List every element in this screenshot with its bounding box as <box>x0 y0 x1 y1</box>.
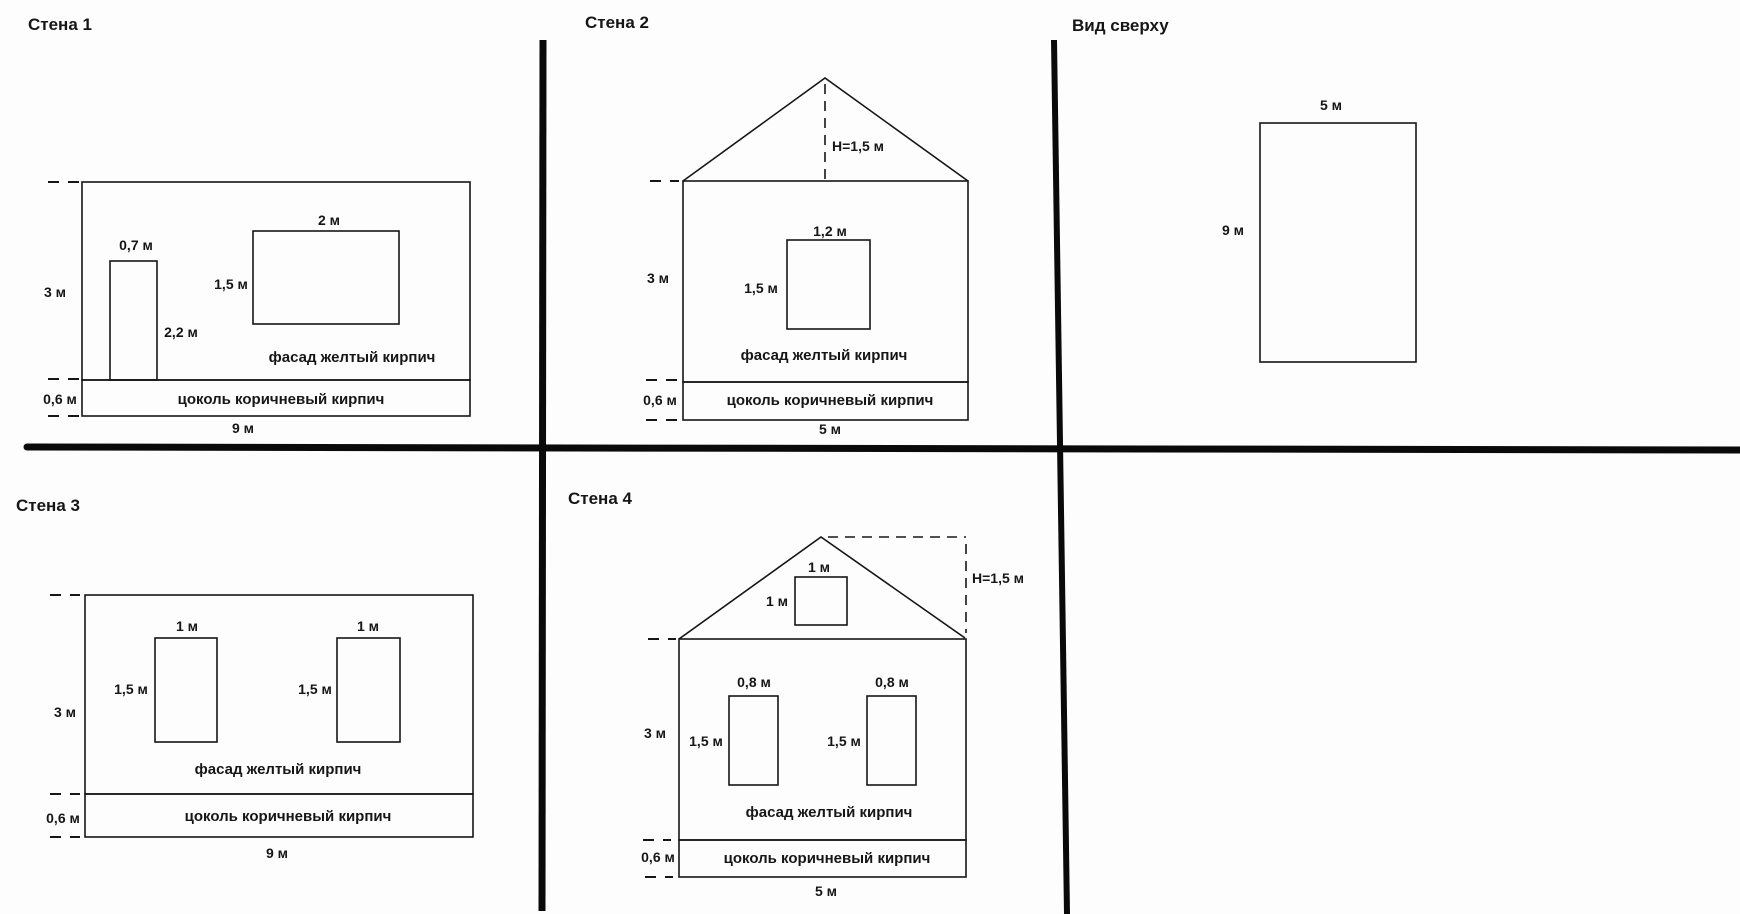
panel-wall3: Стена 3 1 м 1 м 1,5 м 1,5 м 3 м фасад же… <box>16 496 473 861</box>
wall1-door-width-label: 0,7 м <box>119 237 153 253</box>
wall4-window1-width-label: 0,8 м <box>737 674 771 690</box>
wall3-plinth-height-label: 0,6 м <box>46 810 80 826</box>
wall2-plinth-material-label: цоколь коричневый кирпич <box>727 392 934 409</box>
wall1-plinth-material-label: цоколь коричневый кирпич <box>178 391 385 408</box>
top-view-width-label: 5 м <box>1320 97 1342 113</box>
wall2-roof-height-label: H=1,5 м <box>832 138 884 154</box>
wall1-plinth-height-label: 0,6 м <box>43 391 77 407</box>
wall4-window-1 <box>729 696 778 785</box>
wall3-window1-height-label: 1,5 м <box>114 681 148 697</box>
wall3-title: Стена 3 <box>16 496 80 515</box>
wall2-facade-material-label: фасад желтый кирпич <box>741 347 908 364</box>
wall4-plinth-height-label: 0,6 м <box>641 849 675 865</box>
panel-wall2: Стена 2 H=1,5 м 1,2 м 3 м 1,5 м фасад же… <box>585 13 968 437</box>
wall4-gable-window-height-label: 1 м <box>766 593 788 609</box>
wall1-door <box>110 261 157 380</box>
wall4-roof-height-label: H=1,5 м <box>972 570 1024 586</box>
wall4-window2-width-label: 0,8 м <box>875 674 909 690</box>
wall4-window2-height-label: 1,5 м <box>827 733 861 749</box>
divider-vertical-right <box>1054 40 1067 914</box>
blueprint-canvas: Стена 1 3 м 0,7 м 2,2 м 2 м 1,5 м фасад … <box>0 0 1740 914</box>
wall3-width-label: 9 м <box>266 845 288 861</box>
wall2-window-height-label: 1,5 м <box>744 280 778 296</box>
wall1-window <box>253 231 399 324</box>
wall4-window-2 <box>867 696 916 785</box>
wall1-facade-material-label: фасад желтый кирпич <box>269 349 436 366</box>
wall3-window1-width-label: 1 м <box>176 618 198 634</box>
wall4-plinth-material-label: цоколь коричневый кирпич <box>724 850 931 867</box>
top-view-depth-label: 9 м <box>1222 222 1244 238</box>
divider-vertical-left <box>542 40 543 911</box>
wall4-window1-height-label: 1,5 м <box>689 733 723 749</box>
wall3-window-2 <box>337 638 400 742</box>
top-view-title: Вид сверху <box>1072 16 1169 35</box>
wall3-height-label: 3 м <box>54 704 76 720</box>
wall3-facade-material-label: фасад желтый кирпич <box>195 761 362 778</box>
wall2-window <box>787 240 870 329</box>
divider-horizontal <box>27 447 1740 450</box>
wall2-plinth-height-label: 0,6 м <box>643 392 677 408</box>
wall4-facade-material-label: фасад желтый кирпич <box>746 804 913 821</box>
wall1-title: Стена 1 <box>28 15 92 34</box>
wall4-title: Стена 4 <box>568 489 633 508</box>
wall1-door-height-label: 2,2 м <box>164 324 198 340</box>
panel-wall1: Стена 1 3 м 0,7 м 2,2 м 2 м 1,5 м фасад … <box>28 15 470 436</box>
wall4-width-label: 5 м <box>815 883 837 899</box>
top-view-outline <box>1260 123 1416 362</box>
wall4-gable-window-width-label: 1 м <box>808 559 830 575</box>
panel-top-view: Вид сверху 5 м 9 м <box>1072 16 1416 362</box>
wall4-height-label: 3 м <box>644 725 666 741</box>
wall3-plinth-material-label: цоколь коричневый кирпич <box>185 808 392 825</box>
wall2-width-label: 5 м <box>819 421 841 437</box>
panel-wall4: Стена 4 H=1,5 м 1 м 1 м 0,8 м 0,8 м 3 м … <box>568 489 1024 899</box>
wall2-height-label: 3 м <box>647 270 669 286</box>
wall3-window2-height-label: 1,5 м <box>298 681 332 697</box>
blueprint-sheet: Стена 1 3 м 0,7 м 2,2 м 2 м 1,5 м фасад … <box>0 0 1740 914</box>
wall4-gable-window <box>795 577 847 625</box>
wall1-height-label: 3 м <box>44 284 66 300</box>
wall3-window2-width-label: 1 м <box>357 618 379 634</box>
wall1-width-label: 9 м <box>232 420 254 436</box>
wall4-roof-outline <box>679 537 965 639</box>
wall3-window-1 <box>155 638 217 742</box>
wall1-window-width-label: 2 м <box>318 212 340 228</box>
wall1-window-height-label: 1,5 м <box>214 276 248 292</box>
wall2-window-width-label: 1,2 м <box>813 223 847 239</box>
wall2-title: Стена 2 <box>585 13 649 32</box>
